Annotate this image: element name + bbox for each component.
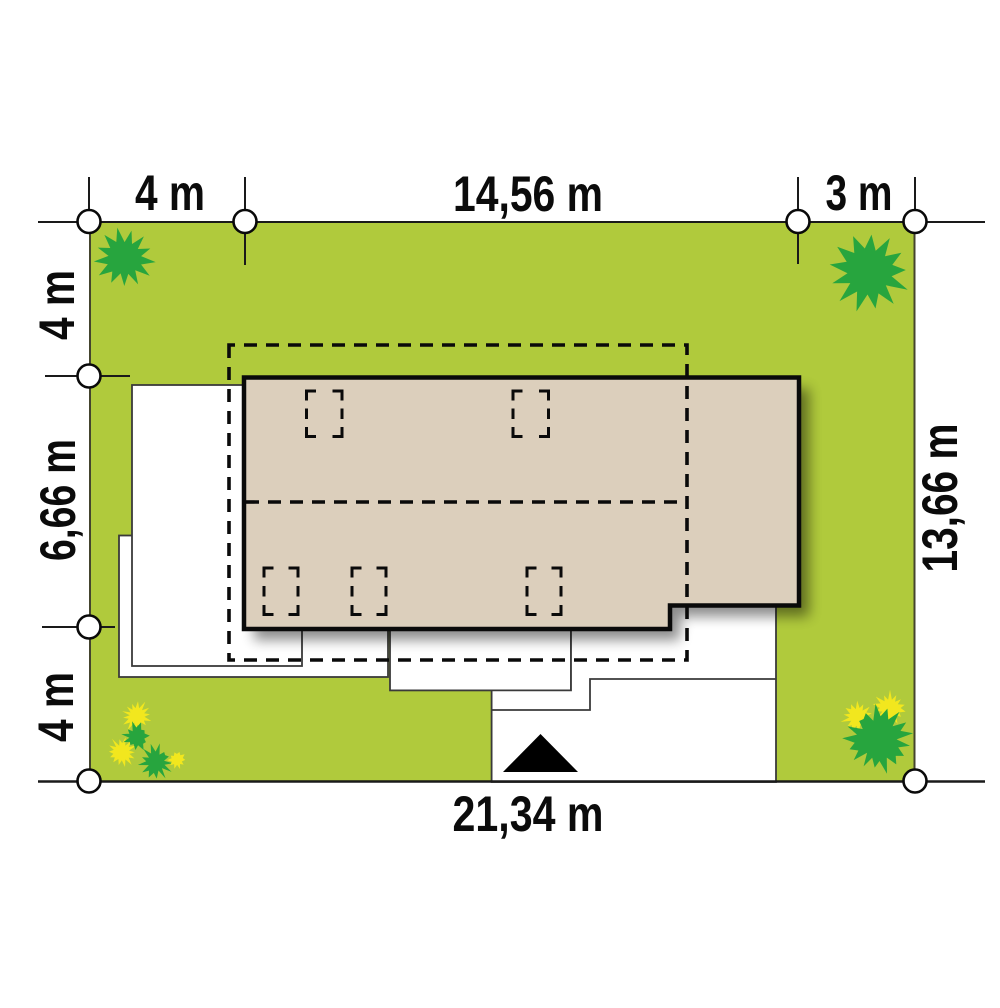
svg-text:14,56 m: 14,56 m	[453, 166, 603, 222]
svg-text:3 m: 3 m	[826, 165, 893, 221]
svg-text:6,66 m: 6,66 m	[30, 439, 86, 561]
svg-text:4 m: 4 m	[135, 165, 205, 221]
svg-text:4 m: 4 m	[28, 672, 84, 742]
svg-text:4 m: 4 m	[29, 270, 85, 340]
svg-text:13,66 m: 13,66 m	[912, 424, 968, 573]
svg-text:21,34 m: 21,34 m	[453, 786, 604, 842]
